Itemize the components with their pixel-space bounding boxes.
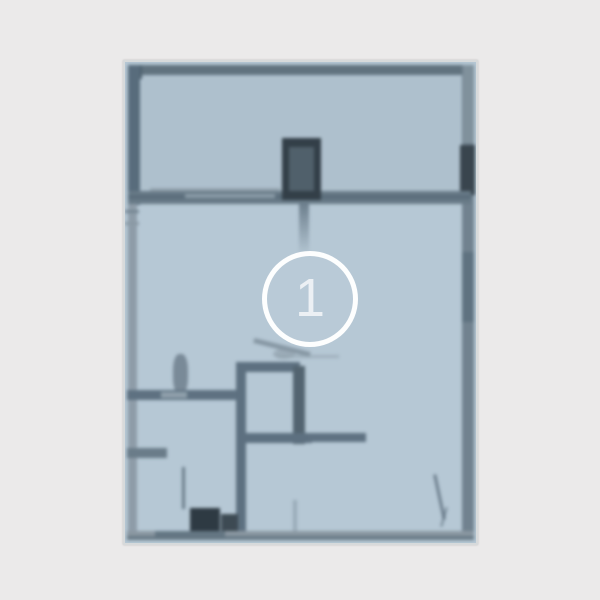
window-streak (185, 194, 275, 198)
wall-top (128, 65, 471, 75)
page-background: 1 (0, 0, 600, 600)
unit-marker[interactable]: 1 (262, 251, 358, 347)
wall-left-lower (128, 202, 137, 539)
door-gap-left-room (161, 392, 187, 398)
wall-bathroom-bottom (236, 433, 312, 443)
door-leaf-smudge (173, 354, 188, 394)
faint-line-right-of-bathroom-top (277, 355, 339, 358)
wall-right-upper-light (463, 65, 474, 143)
wall-left-upper (128, 65, 140, 205)
unit-marker-label: 1 (295, 271, 325, 325)
wall-bathroom-left (236, 362, 246, 444)
thin-wall-vertical-left (182, 467, 185, 509)
wall-stub-below-entry (299, 202, 309, 256)
faint-line-below-bathroom (293, 500, 297, 532)
entry-door-inner (289, 147, 314, 191)
wall-left-bottom-segment (127, 448, 167, 458)
window-tick-left-1 (125, 210, 139, 213)
floorplan-image[interactable]: 1 (123, 60, 478, 545)
wall-right-mid-dark (462, 252, 474, 322)
wall-right-of-bathroom (309, 433, 366, 442)
wall-right-dark-block (460, 145, 475, 195)
wall-bottom-dark-segment (155, 531, 225, 539)
window-tick-left-2 (125, 222, 139, 225)
wall-divider-highlight (150, 188, 280, 191)
